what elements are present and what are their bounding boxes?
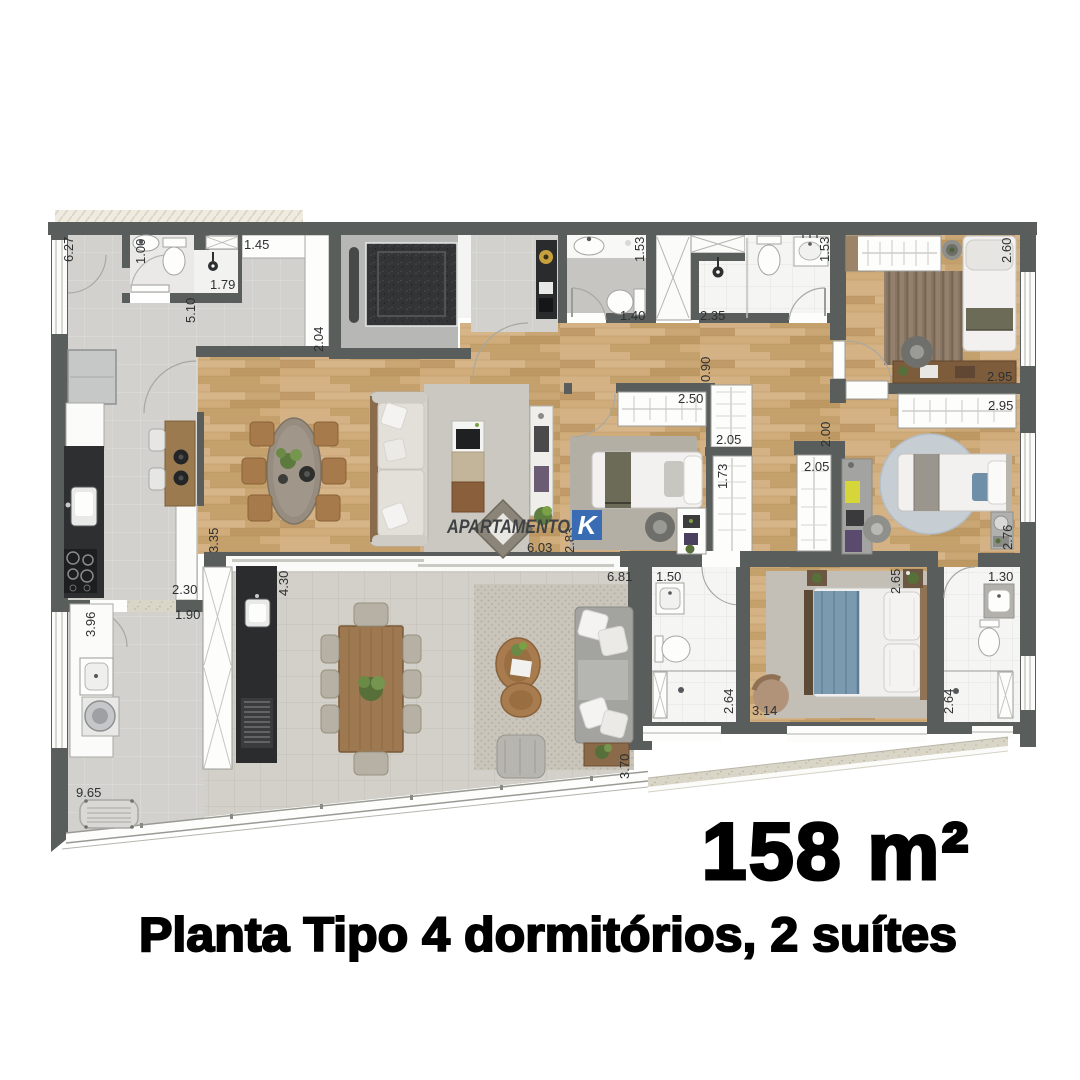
svg-text:0.90: 0.90 — [698, 357, 713, 382]
svg-text:APARTAMENTO: APARTAMENTO — [446, 517, 570, 538]
svg-text:2.64: 2.64 — [721, 689, 736, 714]
svg-text:1.79: 1.79 — [210, 277, 235, 292]
svg-text:2.60: 2.60 — [999, 238, 1014, 263]
svg-text:2.04: 2.04 — [311, 327, 326, 352]
svg-text:5.10: 5.10 — [183, 298, 198, 323]
svg-text:2.95: 2.95 — [987, 369, 1012, 384]
svg-text:1.90: 1.90 — [175, 607, 200, 622]
svg-text:1.45: 1.45 — [244, 237, 269, 252]
svg-text:2.05: 2.05 — [804, 459, 829, 474]
svg-text:3.96: 3.96 — [83, 612, 98, 637]
svg-text:6.81: 6.81 — [607, 569, 632, 584]
svg-text:2.50: 2.50 — [678, 391, 703, 406]
svg-text:9.65: 9.65 — [76, 785, 101, 800]
svg-text:1.53: 1.53 — [817, 237, 832, 262]
svg-text:1.00: 1.00 — [133, 239, 148, 264]
svg-text:4.30: 4.30 — [276, 571, 291, 596]
svg-text:1.50: 1.50 — [656, 569, 681, 584]
svg-text:2.65: 2.65 — [888, 569, 903, 594]
svg-text:1.40: 1.40 — [620, 308, 645, 323]
svg-text:2.05: 2.05 — [716, 432, 741, 447]
svg-text:3.35: 3.35 — [206, 528, 221, 553]
svg-text:6.27: 6.27 — [61, 237, 76, 262]
svg-text:2.95: 2.95 — [988, 398, 1013, 413]
svg-text:1.53: 1.53 — [632, 237, 647, 262]
svg-text:1.73: 1.73 — [715, 464, 730, 489]
svg-text:K: K — [578, 510, 599, 540]
svg-text:2.76: 2.76 — [1000, 525, 1015, 550]
svg-text:158 m²: 158 m² — [702, 807, 971, 897]
svg-text:2.35: 2.35 — [700, 308, 725, 323]
svg-text:3.14: 3.14 — [752, 703, 777, 718]
svg-text:2.30: 2.30 — [172, 582, 197, 597]
svg-text:1.30: 1.30 — [988, 569, 1013, 584]
svg-text:2.00: 2.00 — [818, 422, 833, 447]
svg-text:Planta Tipo 4 dormitórios, 2 s: Planta Tipo 4 dormitórios, 2 suítes — [139, 909, 957, 962]
svg-text:2.64: 2.64 — [941, 689, 956, 714]
svg-text:3.70: 3.70 — [617, 754, 632, 779]
svg-text:6.03: 6.03 — [527, 540, 552, 555]
